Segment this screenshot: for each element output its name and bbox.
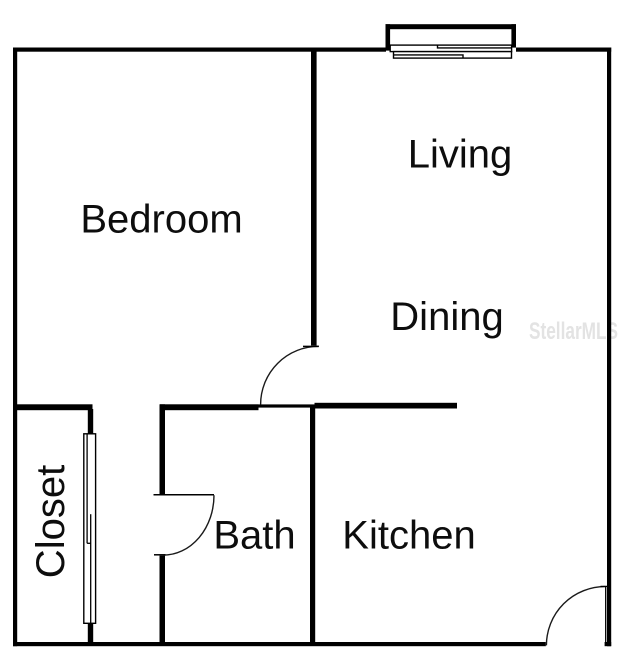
svg-text:Dining: Dining (390, 295, 503, 339)
svg-text:Kitchen: Kitchen (342, 514, 475, 558)
svg-text:Living: Living (408, 133, 513, 177)
svg-text:Closet: Closet (29, 465, 73, 578)
svg-text:StellarMLS: StellarMLS (529, 318, 618, 345)
svg-text:Bedroom: Bedroom (80, 198, 242, 242)
svg-text:Bath: Bath (213, 514, 295, 558)
